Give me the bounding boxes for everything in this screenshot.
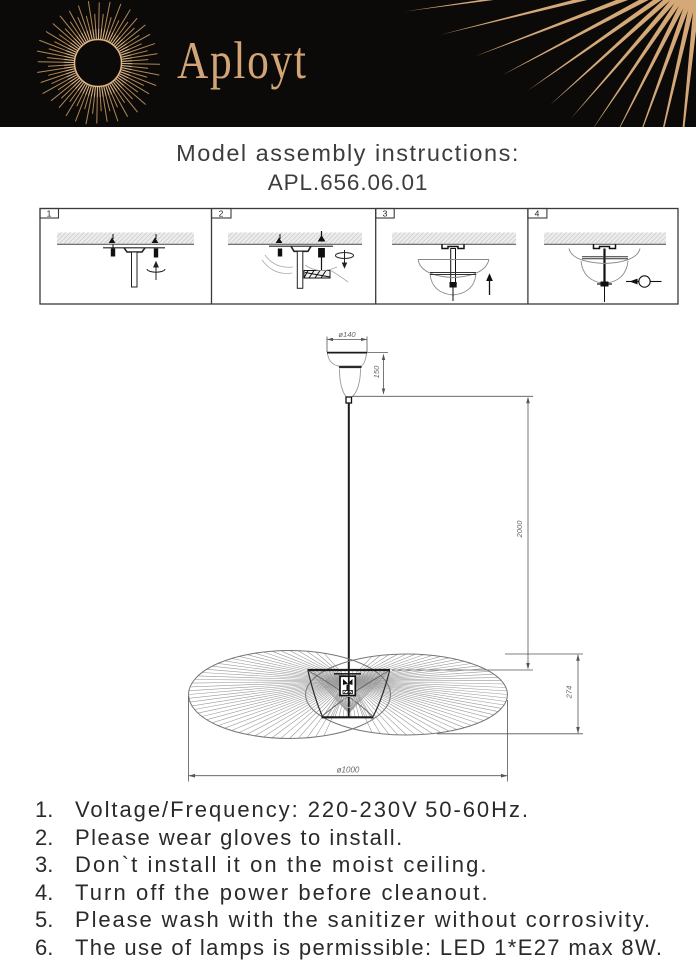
svg-text:274: 274 [565,686,574,700]
svg-text:150: 150 [372,365,381,378]
svg-text:2000: 2000 [515,520,524,539]
svg-text:3: 3 [383,209,388,219]
svg-text:ø1000: ø1000 [337,766,360,775]
svg-text:4: 4 [535,209,540,219]
svg-text:2: 2 [219,209,224,219]
svg-text:1: 1 [47,209,52,219]
svg-text:ø140: ø140 [338,330,356,339]
